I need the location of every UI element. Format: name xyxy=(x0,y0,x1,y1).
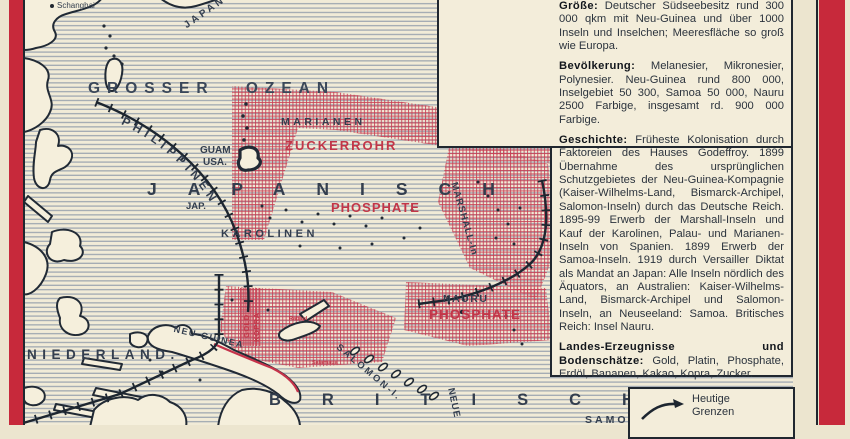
section-geschichte-head: Geschichte: xyxy=(559,134,627,146)
guam-island xyxy=(238,147,260,170)
section-geschichte-body: Früheste Kolonisation durch Faktoreien d… xyxy=(559,134,784,333)
border-arrow-icon xyxy=(636,393,688,423)
map-notch-spacer xyxy=(447,146,553,379)
info-box: Größe: Deutscher Südseebesitz rund 300 0… xyxy=(437,0,793,387)
gold-kopra-strip xyxy=(238,288,262,346)
frame-edge-right xyxy=(845,0,850,425)
frame-red-bar-left xyxy=(9,0,23,425)
legend-label: Heutige Grenzen xyxy=(692,393,754,418)
halmahera xyxy=(130,332,148,347)
sunda-island xyxy=(24,387,45,406)
frame-line-right xyxy=(816,0,818,425)
section-groesse-head: Größe: xyxy=(559,0,598,12)
section-groesse: Größe: Deutscher Südseebesitz rund 300 0… xyxy=(447,0,784,53)
mindanao xyxy=(47,230,83,262)
legend-box: Heutige Grenzen xyxy=(628,387,795,439)
section-bevoelkerung: Bevölkerung: Melanesier, Mikronesier, Po… xyxy=(447,60,784,127)
section-bevoelkerung-head: Bevölkerung: xyxy=(559,60,635,72)
info-box-text: Größe: Deutscher Südseebesitz rund 300 0… xyxy=(447,0,784,373)
frame-red-bar-right xyxy=(819,0,845,425)
frame-line-left xyxy=(23,0,25,425)
